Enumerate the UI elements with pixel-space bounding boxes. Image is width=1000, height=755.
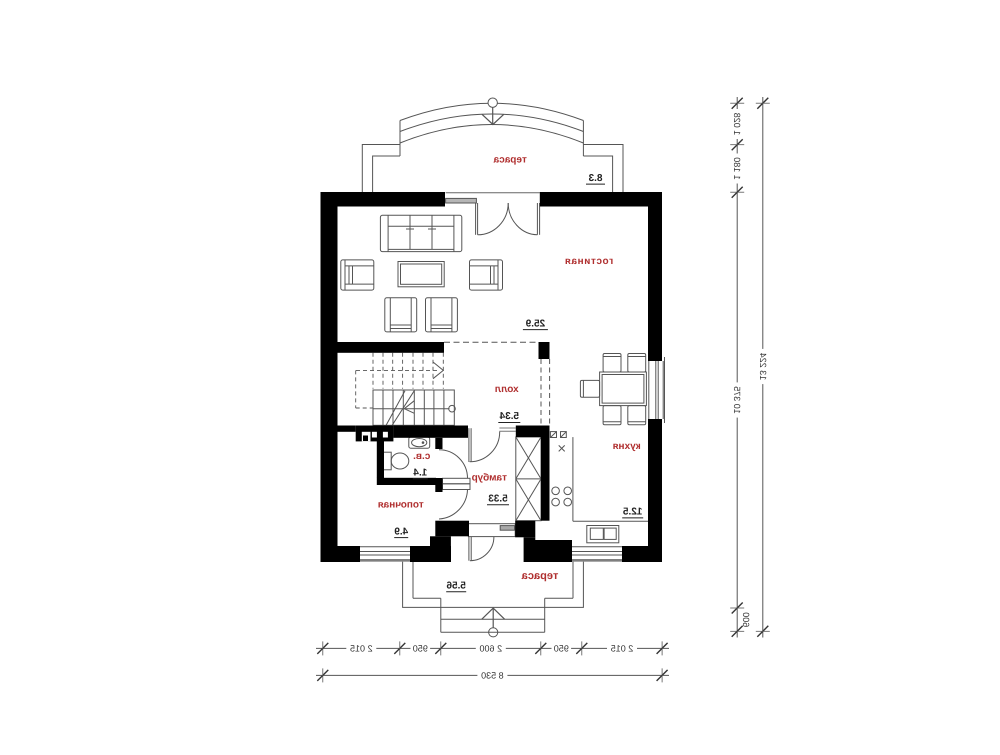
svg-text:600: 600 (741, 612, 751, 627)
svg-text:тамбур: тамбур (472, 473, 507, 484)
svg-text:тераса: тераса (493, 155, 527, 166)
svg-text:с.в.: с.в. (413, 451, 430, 462)
svg-text:13 224: 13 224 (758, 353, 768, 381)
svg-text:950: 950 (413, 643, 428, 653)
svg-text:тераса: тераса (521, 570, 559, 582)
svg-text:5.56: 5.56 (446, 581, 466, 592)
svg-text:гостиная: гостиная (564, 256, 613, 267)
svg-text:25.9: 25.9 (525, 318, 545, 329)
svg-text:5.34: 5.34 (499, 411, 519, 422)
svg-text:10 375: 10 375 (732, 386, 742, 414)
svg-text:8 530: 8 530 (481, 670, 504, 680)
svg-text:топочная: топочная (378, 500, 424, 511)
svg-text:кухня: кухня (612, 441, 640, 452)
svg-text:950: 950 (554, 643, 569, 653)
svg-text:2 600: 2 600 (480, 643, 503, 653)
svg-text:1 028: 1 028 (732, 113, 742, 136)
svg-text:1.4: 1.4 (413, 468, 427, 479)
svg-text:8.3: 8.3 (588, 173, 602, 184)
svg-text:2 015: 2 015 (350, 643, 373, 653)
svg-text:4.9: 4.9 (394, 526, 408, 537)
svg-text:1 180: 1 180 (732, 157, 742, 180)
svg-text:холл: холл (495, 384, 519, 395)
svg-text:12.5: 12.5 (623, 507, 643, 518)
svg-text:5.33: 5.33 (488, 494, 508, 505)
svg-text:2 015: 2 015 (611, 643, 634, 653)
